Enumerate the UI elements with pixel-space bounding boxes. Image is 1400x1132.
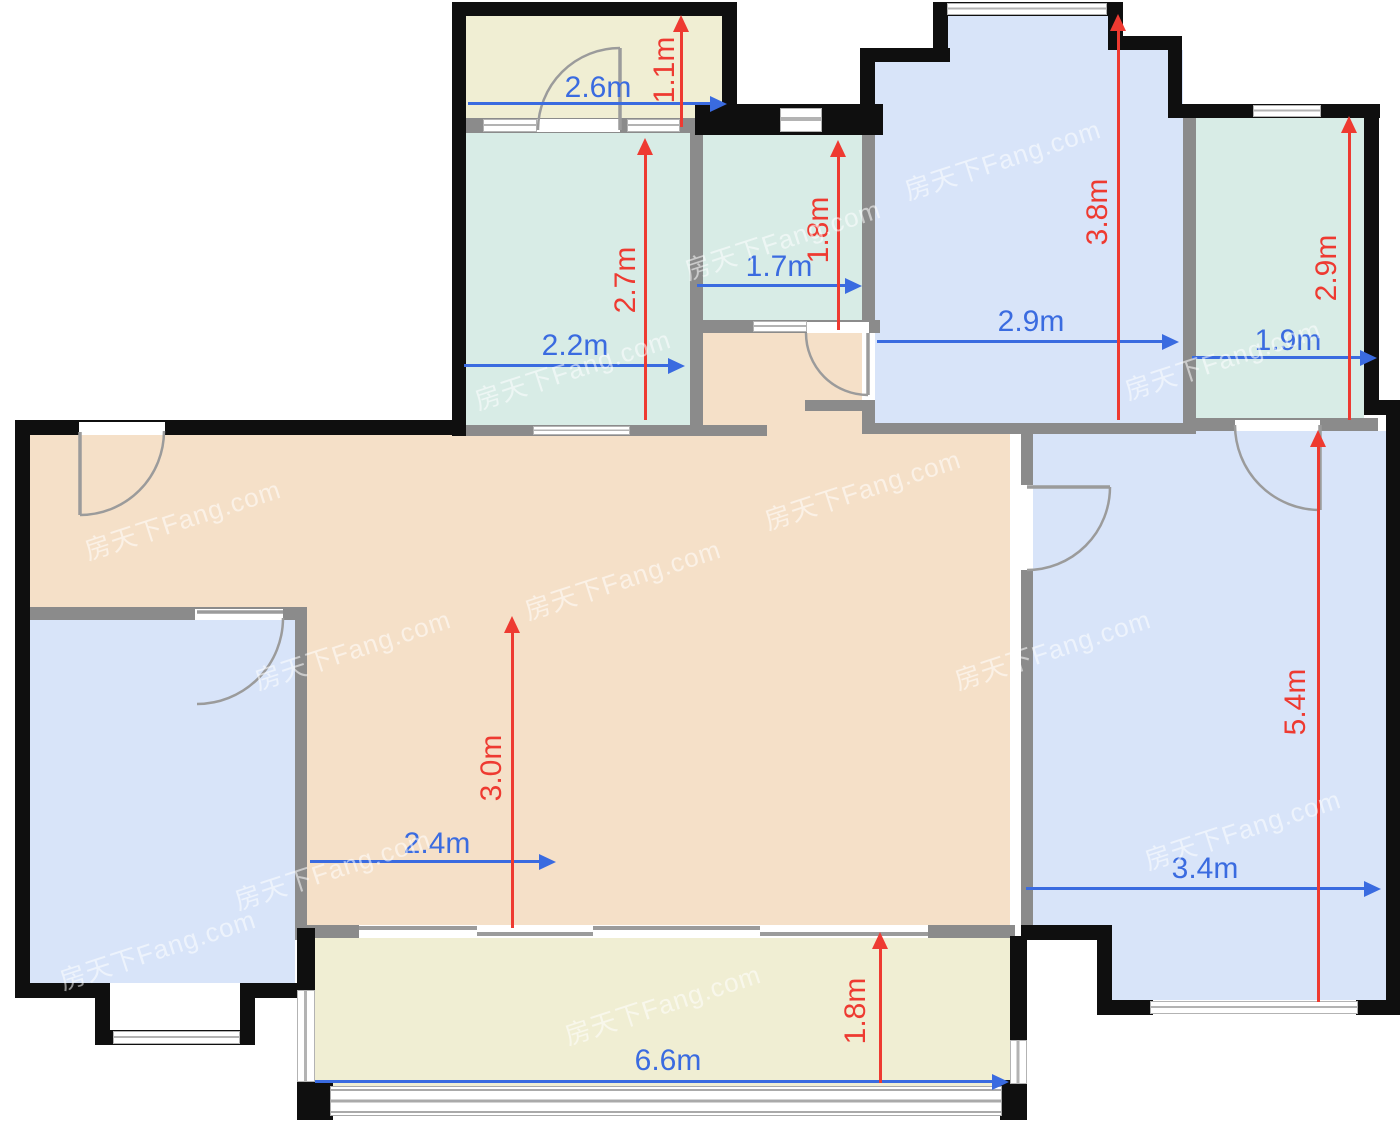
dimension-arrow <box>1317 445 1320 1002</box>
dimension-label-balcony-height: 1.8m <box>839 978 873 1045</box>
dimension-arrow <box>511 631 514 928</box>
dimension-label-bedroom-top-width: 2.9m <box>998 305 1065 339</box>
dimension-label-closet-height: 1.1m <box>648 37 682 104</box>
dimension-arrowhead <box>1364 881 1381 897</box>
dimension-arrowhead <box>845 278 862 294</box>
dimension-arrowhead <box>1162 334 1179 350</box>
dimension-arrow <box>644 153 647 420</box>
dimension-arrow <box>1117 29 1120 420</box>
dimension-label-bath-right-height: 2.9m <box>1310 235 1344 302</box>
dimension-label-living-height: 3.0m <box>475 735 509 802</box>
dimension-arrowhead <box>992 1074 1009 1090</box>
dimension-arrow <box>315 1080 994 1083</box>
left-bedroom-door-arc <box>197 618 283 704</box>
entry-door-arc <box>80 431 164 515</box>
dimension-arrow <box>1348 131 1351 420</box>
dimension-label-bedroom-right-width: 3.4m <box>1172 852 1239 886</box>
floor-plan: 2.6m 1.1m 2.2m 2.7m 1.7m 1.8m 2.9m 3.8m … <box>0 0 1400 1132</box>
dimension-label-closet-width: 2.6m <box>565 71 632 105</box>
dimension-arrowhead <box>1360 350 1377 366</box>
dimension-arrowhead <box>710 96 727 112</box>
dimension-arrow <box>837 155 840 330</box>
bath-right-door-arc <box>1235 425 1320 510</box>
dimension-label-kitchen-width: 2.2m <box>542 329 609 363</box>
dimension-arrowhead <box>539 854 556 870</box>
dimension-label-living-width: 2.4m <box>404 827 471 861</box>
right-bedroom-door-arc <box>1027 487 1110 570</box>
dimension-arrowhead <box>668 358 685 374</box>
dimension-label-kitchen-height: 2.7m <box>609 247 643 314</box>
bath-middle-door-arc <box>806 333 868 395</box>
dimension-arrow <box>879 947 882 1083</box>
dimension-label-bedroom-right-height: 5.4m <box>1279 669 1313 736</box>
dimension-label-bath-right-width: 1.9m <box>1255 324 1322 358</box>
dimension-arrow <box>697 284 847 287</box>
dimension-label-balcony-width: 6.6m <box>635 1044 702 1078</box>
dimension-arrow <box>877 340 1164 343</box>
dimension-arrow <box>1026 887 1366 890</box>
door-swings <box>0 0 1400 1132</box>
dimension-label-bath-middle-height: 1.8m <box>802 197 836 264</box>
dimension-arrow <box>464 364 670 367</box>
dimension-label-bedroom-top-height: 3.8m <box>1081 179 1115 246</box>
